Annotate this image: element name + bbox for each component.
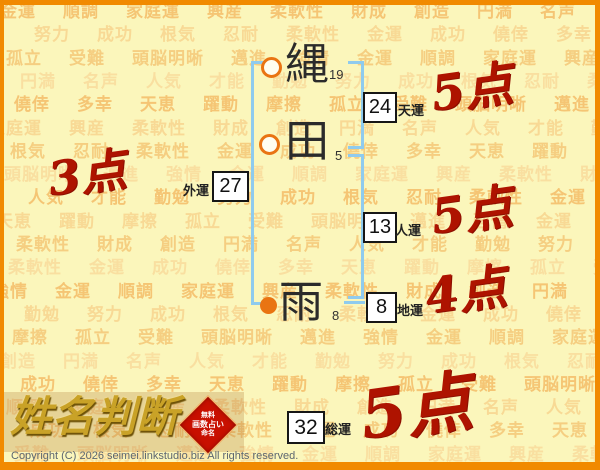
background-row: 金運順調家庭運興産柔軟性財成創造円満名声人気才能勤勉	[4, 5, 595, 21]
background-word: 躍動	[59, 212, 95, 231]
name-char-2: 田	[282, 120, 332, 164]
background-word: 僥倖	[83, 375, 119, 394]
background-word: 勤勉	[315, 352, 351, 371]
background-word: 円満	[477, 5, 513, 21]
gaiun-bracket	[251, 61, 267, 305]
background-word: 金運	[367, 25, 403, 44]
background-word: 天恵	[209, 375, 245, 394]
background-word: 勤勉	[591, 119, 595, 138]
background-word: 天恵	[469, 142, 505, 161]
background-word: 金運	[550, 188, 586, 207]
background-word: 躍動	[532, 142, 568, 161]
background-word: 多幸	[489, 421, 525, 440]
background-row: 柔軟性財成創造円満名声人気才能勤勉努力成功根気忍耐	[16, 236, 595, 254]
tenun-score: 5点	[428, 60, 515, 119]
stroke-count-3: 8	[332, 308, 339, 323]
background-word: 努力	[538, 235, 574, 254]
surname-marker-icon	[259, 134, 280, 155]
name-char-3: 雨	[276, 281, 326, 325]
background-word: 名声	[83, 72, 119, 91]
background-word: 柔軟性	[270, 5, 324, 21]
background-word: 僥倖	[215, 258, 251, 277]
background-word: 人気	[465, 119, 501, 138]
background-word: 財成	[213, 119, 249, 138]
background-word: 創造	[160, 235, 196, 254]
background-word: 家庭運	[126, 5, 180, 21]
background-word: 受難	[138, 328, 174, 347]
background-word: 金運	[426, 328, 462, 347]
background-word: 財成	[351, 5, 387, 21]
background-word: 根気	[160, 25, 196, 44]
background-word: 僥倖	[493, 25, 529, 44]
background-word: 才能	[209, 72, 245, 91]
background-word: 金運	[217, 142, 253, 161]
soun-score: 5点	[356, 368, 476, 449]
background-word: 順調	[63, 5, 99, 21]
soun-label: 総運	[325, 419, 351, 438]
background-word: 柔軟性	[572, 445, 595, 462]
background-word: 人気	[146, 72, 182, 91]
background-word: 名声	[483, 398, 519, 417]
background-word: 摩擦	[266, 95, 302, 114]
background-word: 柔軟性	[16, 235, 70, 254]
background-word: 摩擦	[12, 328, 48, 347]
chiun-value-box: 8	[366, 292, 397, 323]
site-logo[interactable]: 姓名判断	[10, 396, 178, 438]
background-row: 創造円満名声人気才能勤勉努力成功根気忍耐柔軟性金運	[4, 353, 595, 371]
copyright-text: Copyright (C) 2026 seimei.linkstudio.biz…	[11, 450, 298, 462]
background-word: 根気	[504, 352, 540, 371]
background-word: 受難	[593, 258, 595, 277]
background-word: 成功	[280, 188, 316, 207]
background-word: 忍耐	[223, 25, 259, 44]
background-word: 成功	[152, 258, 188, 277]
background-word: 順調	[489, 328, 525, 347]
gaiun-label: 外運	[183, 180, 209, 199]
jinun-bracket	[348, 154, 364, 299]
background-word: 家庭運	[552, 328, 595, 347]
givenname-marker-icon	[260, 297, 277, 314]
background-word: 多幸	[146, 375, 182, 394]
background-word: 孤立	[75, 328, 111, 347]
background-word: 邁進	[554, 95, 590, 114]
background-word: 根気	[10, 142, 46, 161]
background-word: 興産	[509, 445, 545, 462]
background-word: 多幸	[278, 258, 314, 277]
gaiun-value-box: 27	[212, 171, 249, 202]
background-word: 多幸	[406, 142, 442, 161]
background-word: 根気	[213, 305, 249, 324]
background-word: 成功	[150, 305, 186, 324]
background-word: 創造	[4, 352, 36, 371]
background-word: 成功	[20, 375, 56, 394]
background-word: 家庭運	[181, 282, 235, 301]
jinun-label: 人運	[395, 220, 421, 239]
chiun-score: 4点	[422, 263, 509, 322]
free-kanji-fortune-badge: 無料 画数占い 命名	[180, 397, 236, 453]
background-word: 多幸	[77, 95, 113, 114]
background-word: 興産	[207, 5, 243, 21]
tenun-label: 天運	[398, 100, 424, 119]
jinun-score: 5点	[428, 183, 515, 242]
background-word: 名声	[402, 119, 438, 138]
background-word: 孤立	[530, 258, 566, 277]
background-word: 天恵	[552, 421, 588, 440]
background-word: 頭脳明晰	[132, 49, 204, 68]
background-word: 金運	[536, 212, 572, 231]
background-word: 金運	[55, 282, 91, 301]
background-word: 柔軟性	[136, 142, 190, 161]
chiun-label: 地運	[397, 300, 423, 319]
background-word: 人気	[546, 398, 582, 417]
background-word: 成功	[97, 25, 133, 44]
background-word: 金運	[302, 445, 338, 462]
background-word: 多幸	[556, 25, 592, 44]
background-word: 財成	[580, 165, 595, 184]
background-word: 僥倖	[546, 305, 582, 324]
background-word: 成功	[430, 25, 466, 44]
background-word: 円満	[20, 72, 56, 91]
chiun-connector	[344, 301, 365, 304]
background-word: 創造	[414, 5, 450, 21]
background-word: 躍動	[272, 375, 308, 394]
badge-line-3: 命名	[201, 430, 215, 438]
background-word: 順調	[292, 165, 328, 184]
background-word: 邁進	[300, 328, 336, 347]
background-word: 興産	[564, 49, 595, 68]
background-word: 努力	[34, 25, 70, 44]
tenun-value-box: 24	[363, 92, 397, 123]
background-word: 家庭運	[4, 119, 42, 138]
background-word: 人気	[189, 352, 225, 371]
background-word: 興産	[69, 119, 105, 138]
background-word: 天恵	[140, 95, 176, 114]
background-word: 忍耐	[567, 352, 595, 371]
background-word: 勤勉	[24, 305, 60, 324]
background-word: 金運	[4, 5, 36, 21]
background-word: 名声	[126, 352, 162, 371]
background-word: 家庭運	[428, 445, 482, 462]
soun-value-box: 32	[287, 411, 325, 444]
tenun-bracket	[348, 61, 364, 149]
background-word: 柔軟性	[587, 72, 595, 91]
background-word: 忍耐	[524, 72, 560, 91]
background-word: 順調	[118, 282, 154, 301]
name-char-1: 縄	[282, 43, 332, 87]
background-word: 円満	[63, 352, 99, 371]
gaiun-score: 3点	[45, 146, 129, 202]
background-row: 摩擦孤立受難頭脳明晰邁進強情金運順調家庭運興産柔軟性財成	[12, 329, 595, 347]
surname-marker-icon	[261, 57, 282, 78]
background-word: 金運	[89, 258, 125, 277]
background-word: 天恵	[4, 212, 32, 231]
background-word: 柔軟性	[8, 258, 62, 277]
background-word: 僥倖	[14, 95, 50, 114]
background-word: 円満	[532, 282, 568, 301]
background-word: 受難	[69, 49, 105, 68]
stroke-count-1: 19	[329, 67, 343, 82]
background-word: 努力	[378, 352, 414, 371]
background-word: 才能	[528, 119, 564, 138]
background-word: 強情	[4, 282, 28, 301]
background-word: 柔軟性	[132, 119, 186, 138]
seimei-handan-result-page: 金運順調家庭運興産柔軟性財成創造円満名声人気才能勤勉努力成功根気忍耐柔軟性金運成…	[0, 0, 600, 470]
background-word: 才能	[252, 352, 288, 371]
background-word: 努力	[87, 305, 123, 324]
background-word: 孤立	[185, 212, 221, 231]
stroke-count-2: 5	[335, 148, 342, 163]
background-word: 頭脳明晰	[201, 328, 273, 347]
background-word: 強情	[363, 328, 399, 347]
background-word: 頭脳明晰	[524, 375, 595, 394]
background-word: 摩擦	[122, 212, 158, 231]
badge-line-2: 画数占い	[192, 420, 224, 429]
background-word: 名声	[540, 5, 576, 21]
background-word: 財成	[97, 235, 133, 254]
background-word: 名声	[286, 235, 322, 254]
background-row: 柔軟性金運成功僥倖多幸天恵躍動摩擦孤立受難頭脳明晰邁進	[8, 259, 595, 277]
background-word: 躍動	[203, 95, 239, 114]
background-word: 興産	[436, 165, 472, 184]
background-word: 孤立	[6, 49, 42, 68]
jinun-value-box: 13	[363, 212, 397, 243]
